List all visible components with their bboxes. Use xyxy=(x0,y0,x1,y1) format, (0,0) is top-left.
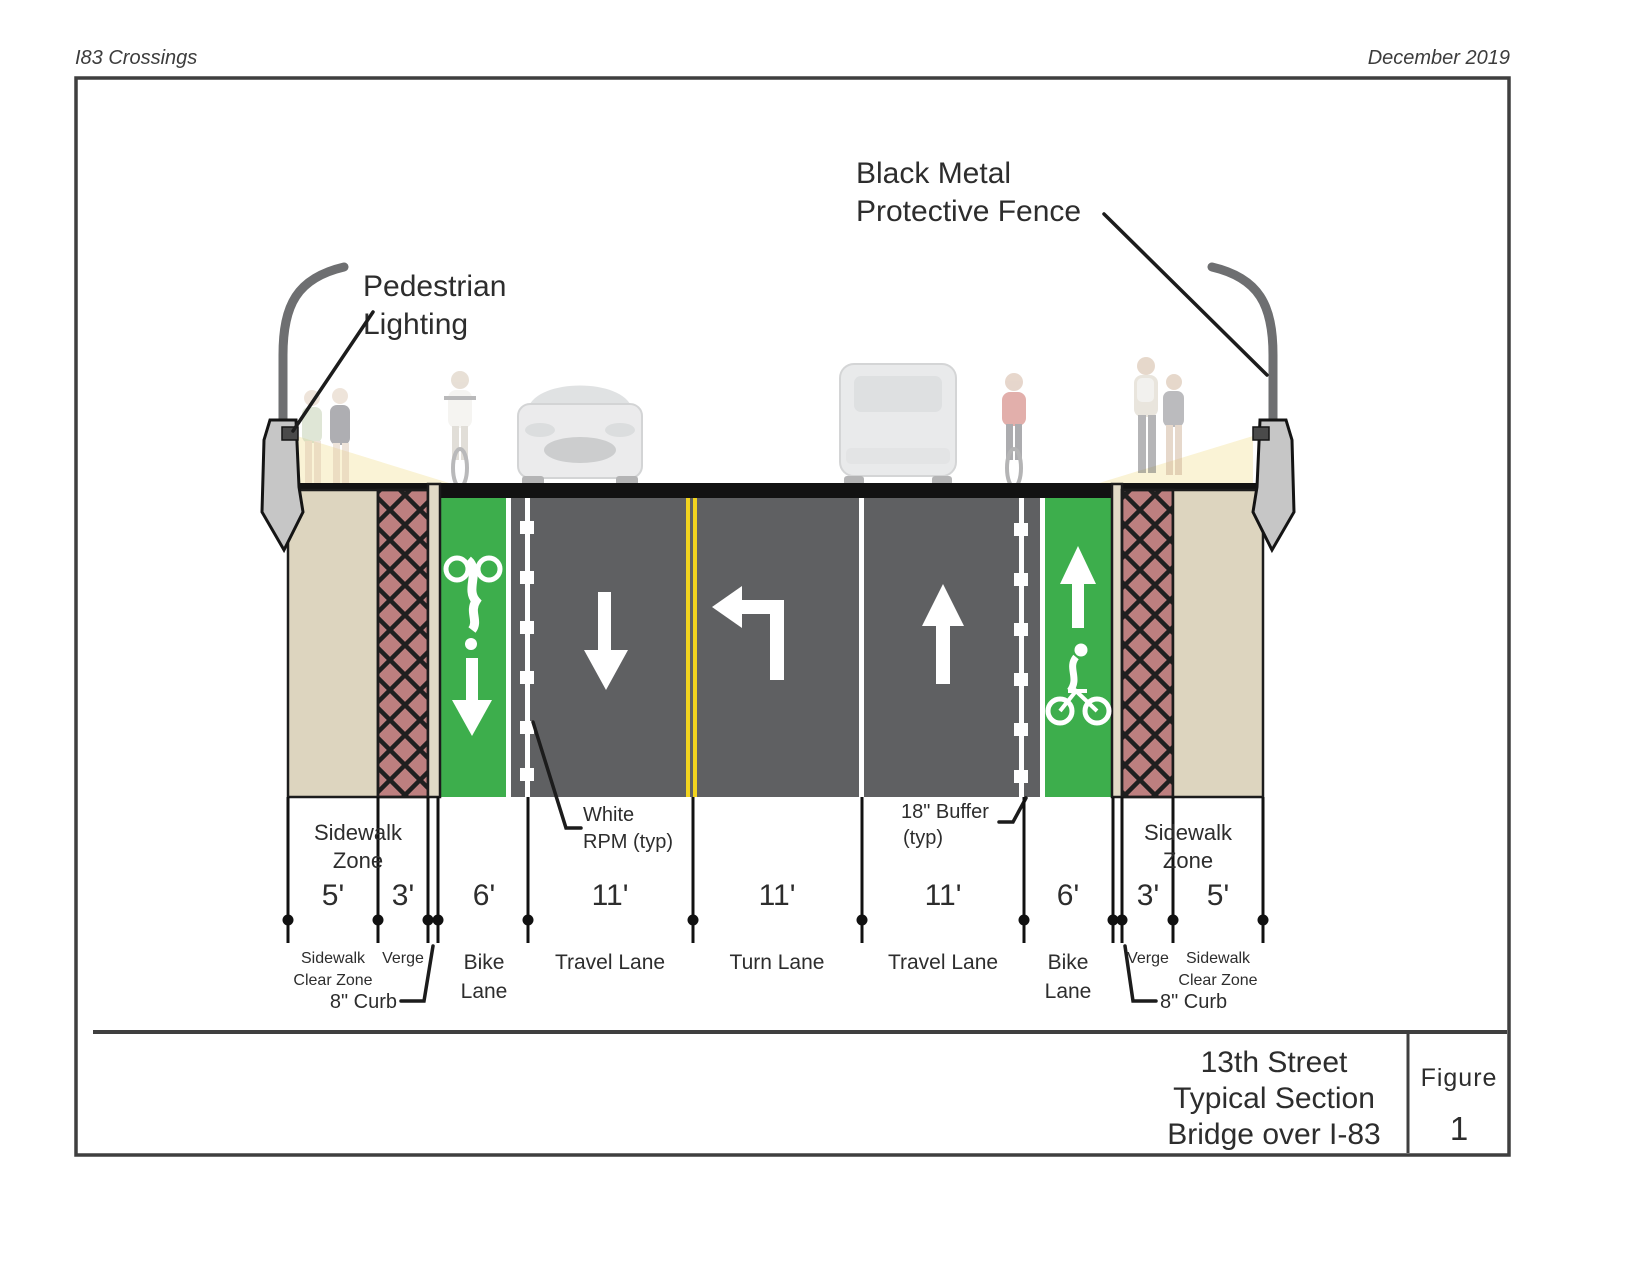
svg-text:Clear Zone: Clear Zone xyxy=(293,972,372,989)
svg-text:6': 6' xyxy=(473,879,495,912)
svg-text:Verge: Verge xyxy=(1127,950,1169,967)
svg-text:3': 3' xyxy=(1137,879,1159,912)
svg-text:3': 3' xyxy=(392,879,414,912)
sidewalk-zone-label-left: Sidewalk Zone xyxy=(314,820,403,873)
right-edge-line xyxy=(1040,498,1045,797)
title-line1: 13th Street xyxy=(1201,1046,1348,1079)
svg-text:Turn Lane: Turn Lane xyxy=(730,951,825,974)
svg-text:Zone: Zone xyxy=(1163,848,1213,873)
figure-label: Figure xyxy=(1421,1064,1498,1092)
svg-text:Sidewalk: Sidewalk xyxy=(301,950,366,967)
cyclist-left-icon xyxy=(444,371,476,487)
svg-text:8" Curb: 8" Curb xyxy=(1160,991,1227,1013)
left-verge-block xyxy=(378,490,428,797)
svg-text:Black Metal: Black Metal xyxy=(856,157,1011,190)
svg-text:Travel Lane: Travel Lane xyxy=(888,951,998,974)
typical-section-drawing: I83 Crossings December 2019 xyxy=(0,0,1650,1275)
svg-text:Lane: Lane xyxy=(1045,980,1092,1003)
svg-text:Lane: Lane xyxy=(461,980,508,1003)
figure-block: Figure 1 xyxy=(1421,1064,1498,1147)
figure-number: 1 xyxy=(1450,1110,1468,1147)
pedestrians-right-icon xyxy=(1134,357,1184,475)
buffer-callout: 18" Buffer (typ) xyxy=(901,798,1026,849)
svg-text:Protective Fence: Protective Fence xyxy=(856,195,1081,228)
lane-line xyxy=(859,498,864,797)
drawing-sheet: I83 Crossings December 2019 xyxy=(0,0,1650,1275)
svg-text:Sidewalk: Sidewalk xyxy=(314,820,403,845)
svg-text:Lighting: Lighting xyxy=(363,308,468,341)
svg-text:(typ): (typ) xyxy=(903,827,943,849)
header-project-title: I83 Crossings xyxy=(75,47,197,69)
svg-text:Sidewalk: Sidewalk xyxy=(1186,950,1251,967)
title-block: 13th Street Typical Section Bridge over … xyxy=(1167,1046,1380,1151)
svg-text:White: White xyxy=(583,804,634,826)
svg-text:5': 5' xyxy=(322,879,344,912)
svg-text:18" Buffer: 18" Buffer xyxy=(901,801,989,823)
svg-text:6': 6' xyxy=(1057,879,1079,912)
left-curb xyxy=(428,484,440,797)
cyclist-right-icon xyxy=(1002,373,1026,487)
left-sidewalk-block xyxy=(288,490,378,797)
zone-name-labels: Sidewalk Clear Zone Verge Bike Lane Trav… xyxy=(293,950,1257,1003)
svg-text:11': 11' xyxy=(925,879,962,912)
car-front-icon xyxy=(518,386,642,491)
svg-text:Travel Lane: Travel Lane xyxy=(555,951,665,974)
svg-text:Verge: Verge xyxy=(382,950,424,967)
svg-text:Zone: Zone xyxy=(333,848,383,873)
svg-text:Sidewalk: Sidewalk xyxy=(1144,820,1233,845)
title-line2: Typical Section xyxy=(1173,1082,1375,1115)
svg-text:RPM (typ): RPM (typ) xyxy=(583,831,673,853)
fence-callout: Black Metal Protective Fence xyxy=(856,157,1267,375)
svg-text:11': 11' xyxy=(759,879,796,912)
svg-text:8" Curb: 8" Curb xyxy=(330,991,397,1013)
left-edge-line xyxy=(506,498,511,797)
sidewalk-zone-label-right: Sidewalk Zone xyxy=(1144,820,1233,873)
dimension-dots xyxy=(283,915,1269,926)
suv-rear-icon xyxy=(840,364,956,490)
svg-text:Bike: Bike xyxy=(464,951,505,974)
svg-text:5': 5' xyxy=(1207,879,1229,912)
right-sidewalk-block xyxy=(1173,490,1263,797)
svg-text:11': 11' xyxy=(592,879,629,912)
title-line3: Bridge over I-83 xyxy=(1167,1118,1380,1151)
dimension-labels: 5' 3' 6' 11' 11' 11' 6' 3' 5' xyxy=(322,879,1229,912)
right-curb xyxy=(1112,484,1122,797)
svg-text:Pedestrian: Pedestrian xyxy=(363,270,506,303)
lighting-callout: Pedestrian Lighting xyxy=(293,270,506,431)
light-cone-left xyxy=(297,436,462,487)
svg-text:Bike: Bike xyxy=(1048,951,1089,974)
light-fixture-right-icon xyxy=(1253,427,1269,440)
streetlight-right-icon xyxy=(1212,267,1273,424)
right-verge-block xyxy=(1122,490,1173,797)
header-date: December 2019 xyxy=(1368,47,1510,69)
svg-text:Clear Zone: Clear Zone xyxy=(1178,972,1257,989)
